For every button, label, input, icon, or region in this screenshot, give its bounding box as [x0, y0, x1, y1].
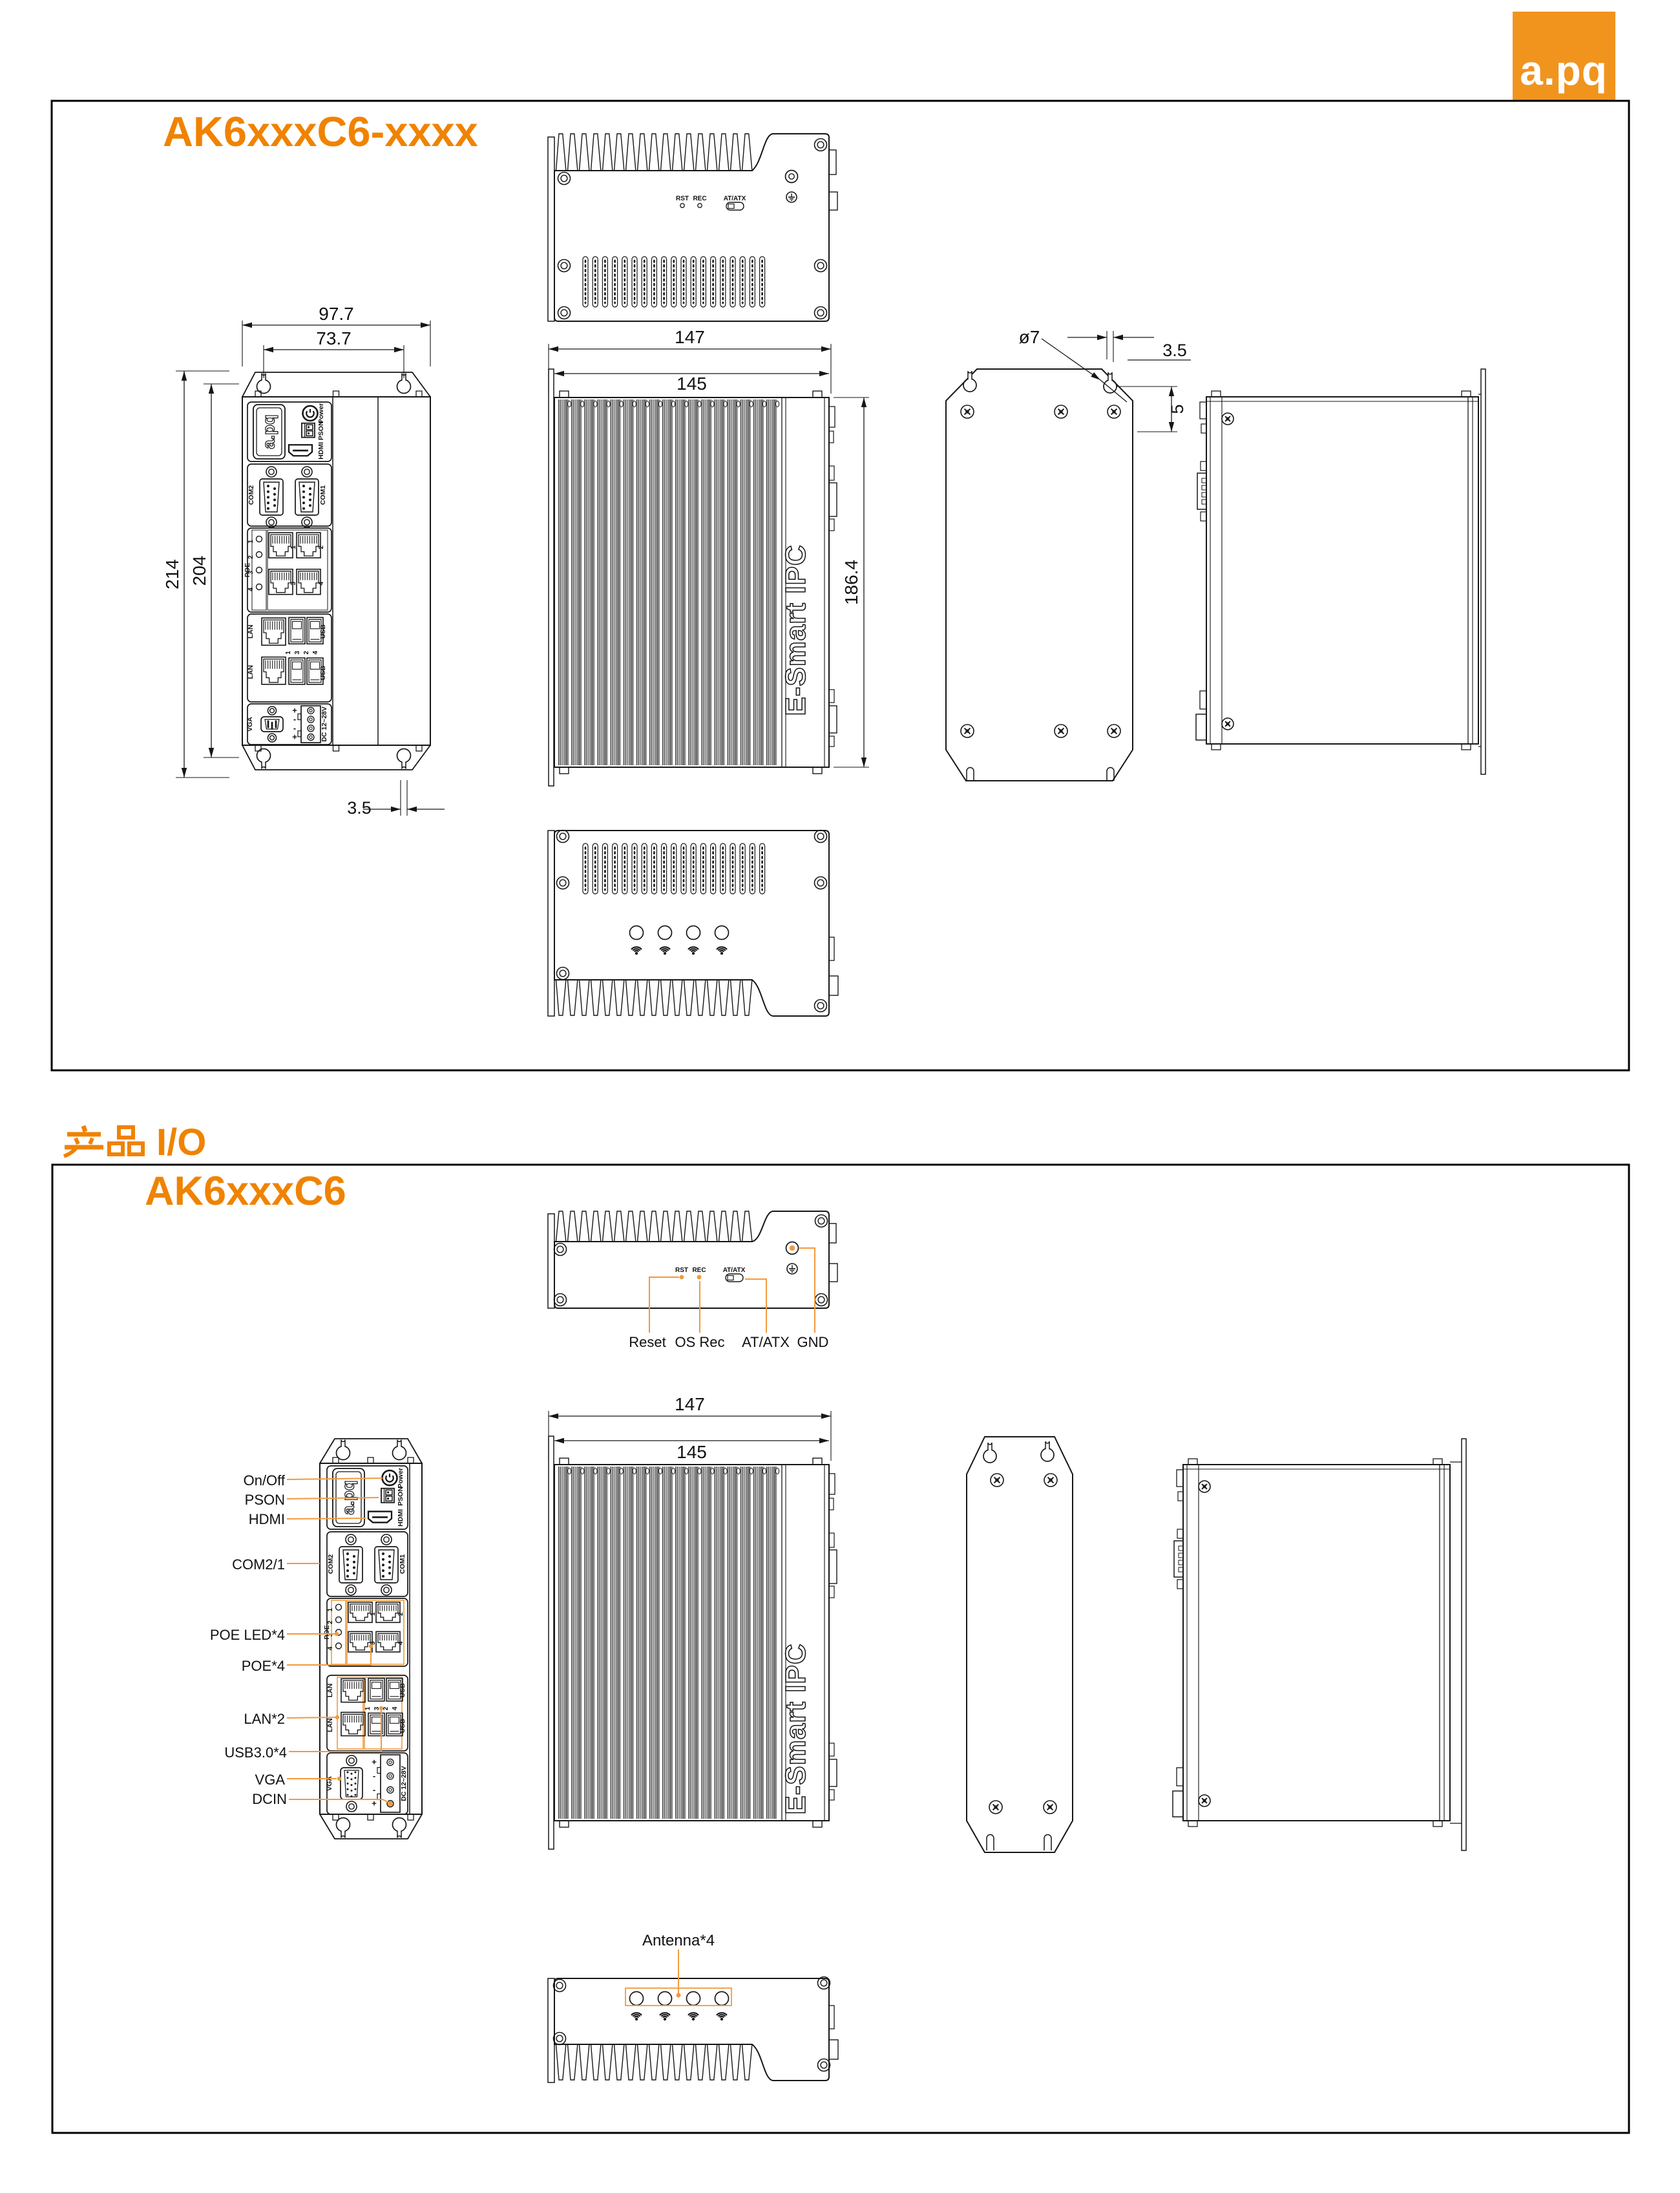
svg-text:LAN: LAN: [326, 1684, 334, 1698]
svg-text:1: 1: [290, 546, 297, 549]
svg-text:PSON: PSON: [317, 421, 325, 440]
svg-text:2: 2: [327, 1620, 334, 1624]
svg-text:DCIN: DCIN: [252, 1791, 287, 1807]
svg-text:1: 1: [247, 540, 255, 544]
svg-text:HDMI: HDMI: [397, 1509, 404, 1527]
svg-text:1: 1: [364, 1706, 372, 1710]
svg-text:Reset: Reset: [629, 1334, 666, 1350]
svg-text:4: 4: [392, 1706, 399, 1710]
svg-text:2: 2: [247, 555, 255, 559]
svg-text:E-Smart IPC: E-Smart IPC: [780, 544, 812, 715]
svg-text:USB: USB: [399, 1683, 406, 1698]
svg-text:a.pq: a.pq: [1520, 47, 1608, 94]
svg-text:2: 2: [318, 546, 325, 549]
svg-text:PSON: PSON: [397, 1487, 404, 1506]
svg-text:204: 204: [189, 556, 209, 586]
svg-text:PSON: PSON: [245, 1492, 285, 1508]
svg-text:+: +: [372, 1757, 377, 1767]
svg-text:DC 12~28V: DC 12~28V: [320, 706, 328, 742]
svg-text:+: +: [292, 732, 297, 742]
svg-text:VGA: VGA: [255, 1772, 286, 1788]
svg-text:214: 214: [162, 559, 182, 589]
svg-text:VGA: VGA: [246, 717, 254, 732]
svg-text:RST: RST: [676, 195, 689, 202]
svg-text:4: 4: [318, 582, 325, 586]
svg-text:147: 147: [675, 327, 705, 347]
svg-text:Power: Power: [317, 403, 325, 424]
svg-text:LAN: LAN: [326, 1718, 334, 1732]
svg-text:Power: Power: [397, 1468, 404, 1488]
svg-text:4: 4: [327, 1646, 334, 1650]
svg-text:POE: POE: [244, 563, 251, 577]
svg-text:REC: REC: [692, 1267, 706, 1274]
svg-text:COM1: COM1: [319, 485, 327, 505]
svg-text:4: 4: [312, 651, 319, 655]
svg-text:3.5: 3.5: [1162, 341, 1187, 360]
svg-text:AT/ATX: AT/ATX: [723, 1267, 746, 1274]
svg-text:GND: GND: [797, 1334, 829, 1350]
svg-text:145: 145: [677, 374, 707, 394]
svg-text:AK6xxxC6-xxxx: AK6xxxC6-xxxx: [163, 108, 478, 155]
svg-text:1: 1: [370, 1612, 377, 1616]
svg-text:1: 1: [285, 651, 292, 655]
svg-text:73.7: 73.7: [316, 328, 352, 348]
svg-text:4: 4: [397, 1641, 404, 1645]
svg-text:1: 1: [327, 1607, 334, 1611]
svg-text:OS Rec: OS Rec: [675, 1334, 724, 1350]
svg-text:-: -: [373, 1785, 375, 1794]
svg-text:2: 2: [383, 1706, 390, 1710]
svg-text:LAN*2: LAN*2: [244, 1711, 285, 1727]
svg-text:ø7: ø7: [1019, 327, 1040, 347]
svg-text:COM2/1: COM2/1: [232, 1556, 285, 1573]
svg-text:USB: USB: [319, 624, 327, 639]
svg-text:HDMI: HDMI: [249, 1511, 285, 1527]
svg-text:COM2: COM2: [327, 1554, 335, 1574]
svg-text:POE: POE: [323, 1625, 331, 1639]
svg-text:AT/ATX: AT/ATX: [742, 1334, 790, 1350]
svg-text:AT/ATX: AT/ATX: [724, 195, 746, 202]
svg-text:COM1: COM1: [399, 1554, 406, 1574]
svg-text:4: 4: [247, 588, 255, 591]
svg-text:DC 12~28V: DC 12~28V: [400, 1766, 408, 1801]
svg-text:HDMI: HDMI: [317, 442, 325, 460]
svg-text:LAN: LAN: [247, 665, 255, 679]
svg-text:USB3.0*4: USB3.0*4: [224, 1744, 287, 1761]
svg-text:I/O: I/O: [156, 1121, 206, 1163]
svg-text:a.pq: a.pq: [259, 414, 278, 449]
svg-text:USB: USB: [319, 666, 327, 681]
svg-text:3.5: 3.5: [347, 798, 372, 818]
svg-text:-: -: [373, 1771, 375, 1781]
svg-text:POE*4: POE*4: [242, 1658, 285, 1674]
svg-text:LAN: LAN: [247, 624, 255, 639]
svg-text:RST: RST: [675, 1267, 688, 1274]
svg-text:97.7: 97.7: [319, 304, 354, 324]
svg-text:On/Off: On/Off: [244, 1472, 286, 1488]
svg-text:186.4: 186.4: [841, 560, 861, 605]
svg-text:145: 145: [677, 1442, 707, 1462]
svg-text:COM2: COM2: [247, 485, 255, 505]
svg-text:5: 5: [1168, 404, 1187, 414]
svg-text:E-Smart IPC: E-Smart IPC: [780, 1643, 812, 1814]
svg-text:Antenna*4: Antenna*4: [642, 1932, 715, 1949]
svg-text:USB: USB: [399, 1719, 406, 1733]
svg-text:2: 2: [397, 1612, 404, 1616]
svg-text:REC: REC: [693, 195, 706, 202]
svg-text:3: 3: [290, 582, 297, 586]
svg-text:2: 2: [303, 651, 310, 655]
svg-text:AK6xxxC6: AK6xxxC6: [145, 1169, 346, 1214]
svg-text:POE LED*4: POE LED*4: [210, 1627, 285, 1643]
svg-text:3: 3: [294, 651, 301, 655]
svg-text:147: 147: [675, 1394, 705, 1414]
